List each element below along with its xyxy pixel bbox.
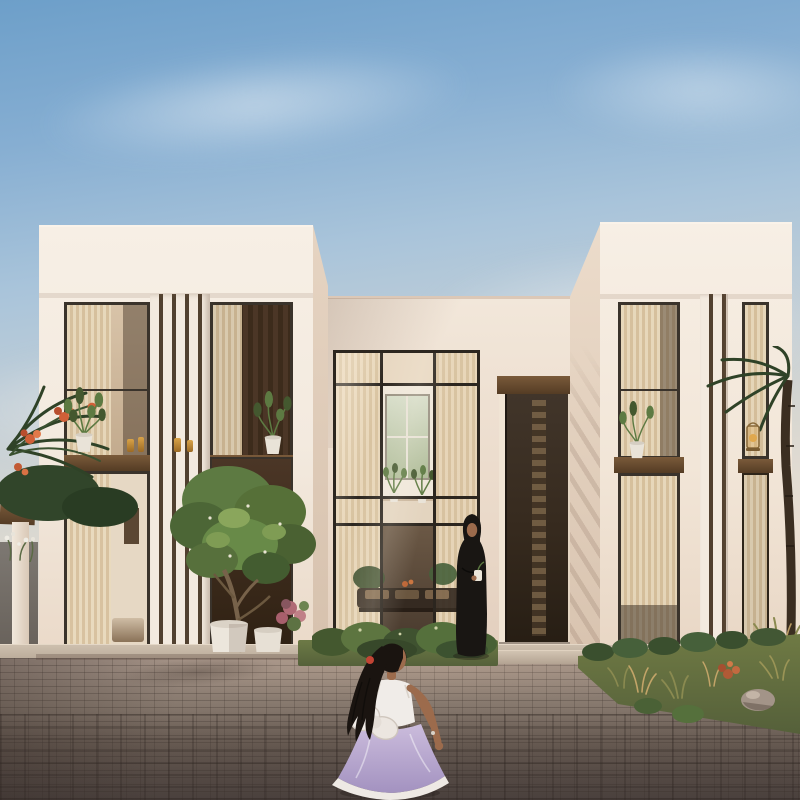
flower-planter (254, 627, 282, 652)
window-interior-shade (660, 305, 677, 456)
hand (471, 575, 476, 580)
hair-clip (366, 656, 374, 664)
pink-shrub (276, 599, 309, 631)
right-hand (435, 742, 443, 750)
face (467, 523, 477, 537)
door-slatted-glazing (532, 400, 546, 636)
entrance-header-beam (497, 376, 575, 394)
bracelet (431, 731, 435, 735)
right-tower-side-face (570, 222, 601, 662)
parapet-shadow-line (600, 294, 792, 299)
palm-shadow-on-wall (570, 222, 601, 662)
courtyard-tree (170, 448, 322, 663)
tree-planter (210, 620, 248, 652)
villa-rendering (0, 0, 800, 800)
window-curtain (213, 305, 242, 456)
sill-plant (616, 400, 658, 460)
lantern (742, 420, 764, 454)
sill-plant (250, 390, 296, 456)
right-planting-bed (578, 622, 800, 774)
window-transom (621, 389, 677, 391)
entrance-door (505, 394, 568, 642)
girl-figure (318, 630, 464, 800)
palm-right-edge (698, 346, 800, 668)
interior-sofa (112, 618, 144, 642)
tree-foliage (170, 466, 316, 584)
rock (741, 689, 775, 711)
sill-plant (62, 386, 106, 454)
